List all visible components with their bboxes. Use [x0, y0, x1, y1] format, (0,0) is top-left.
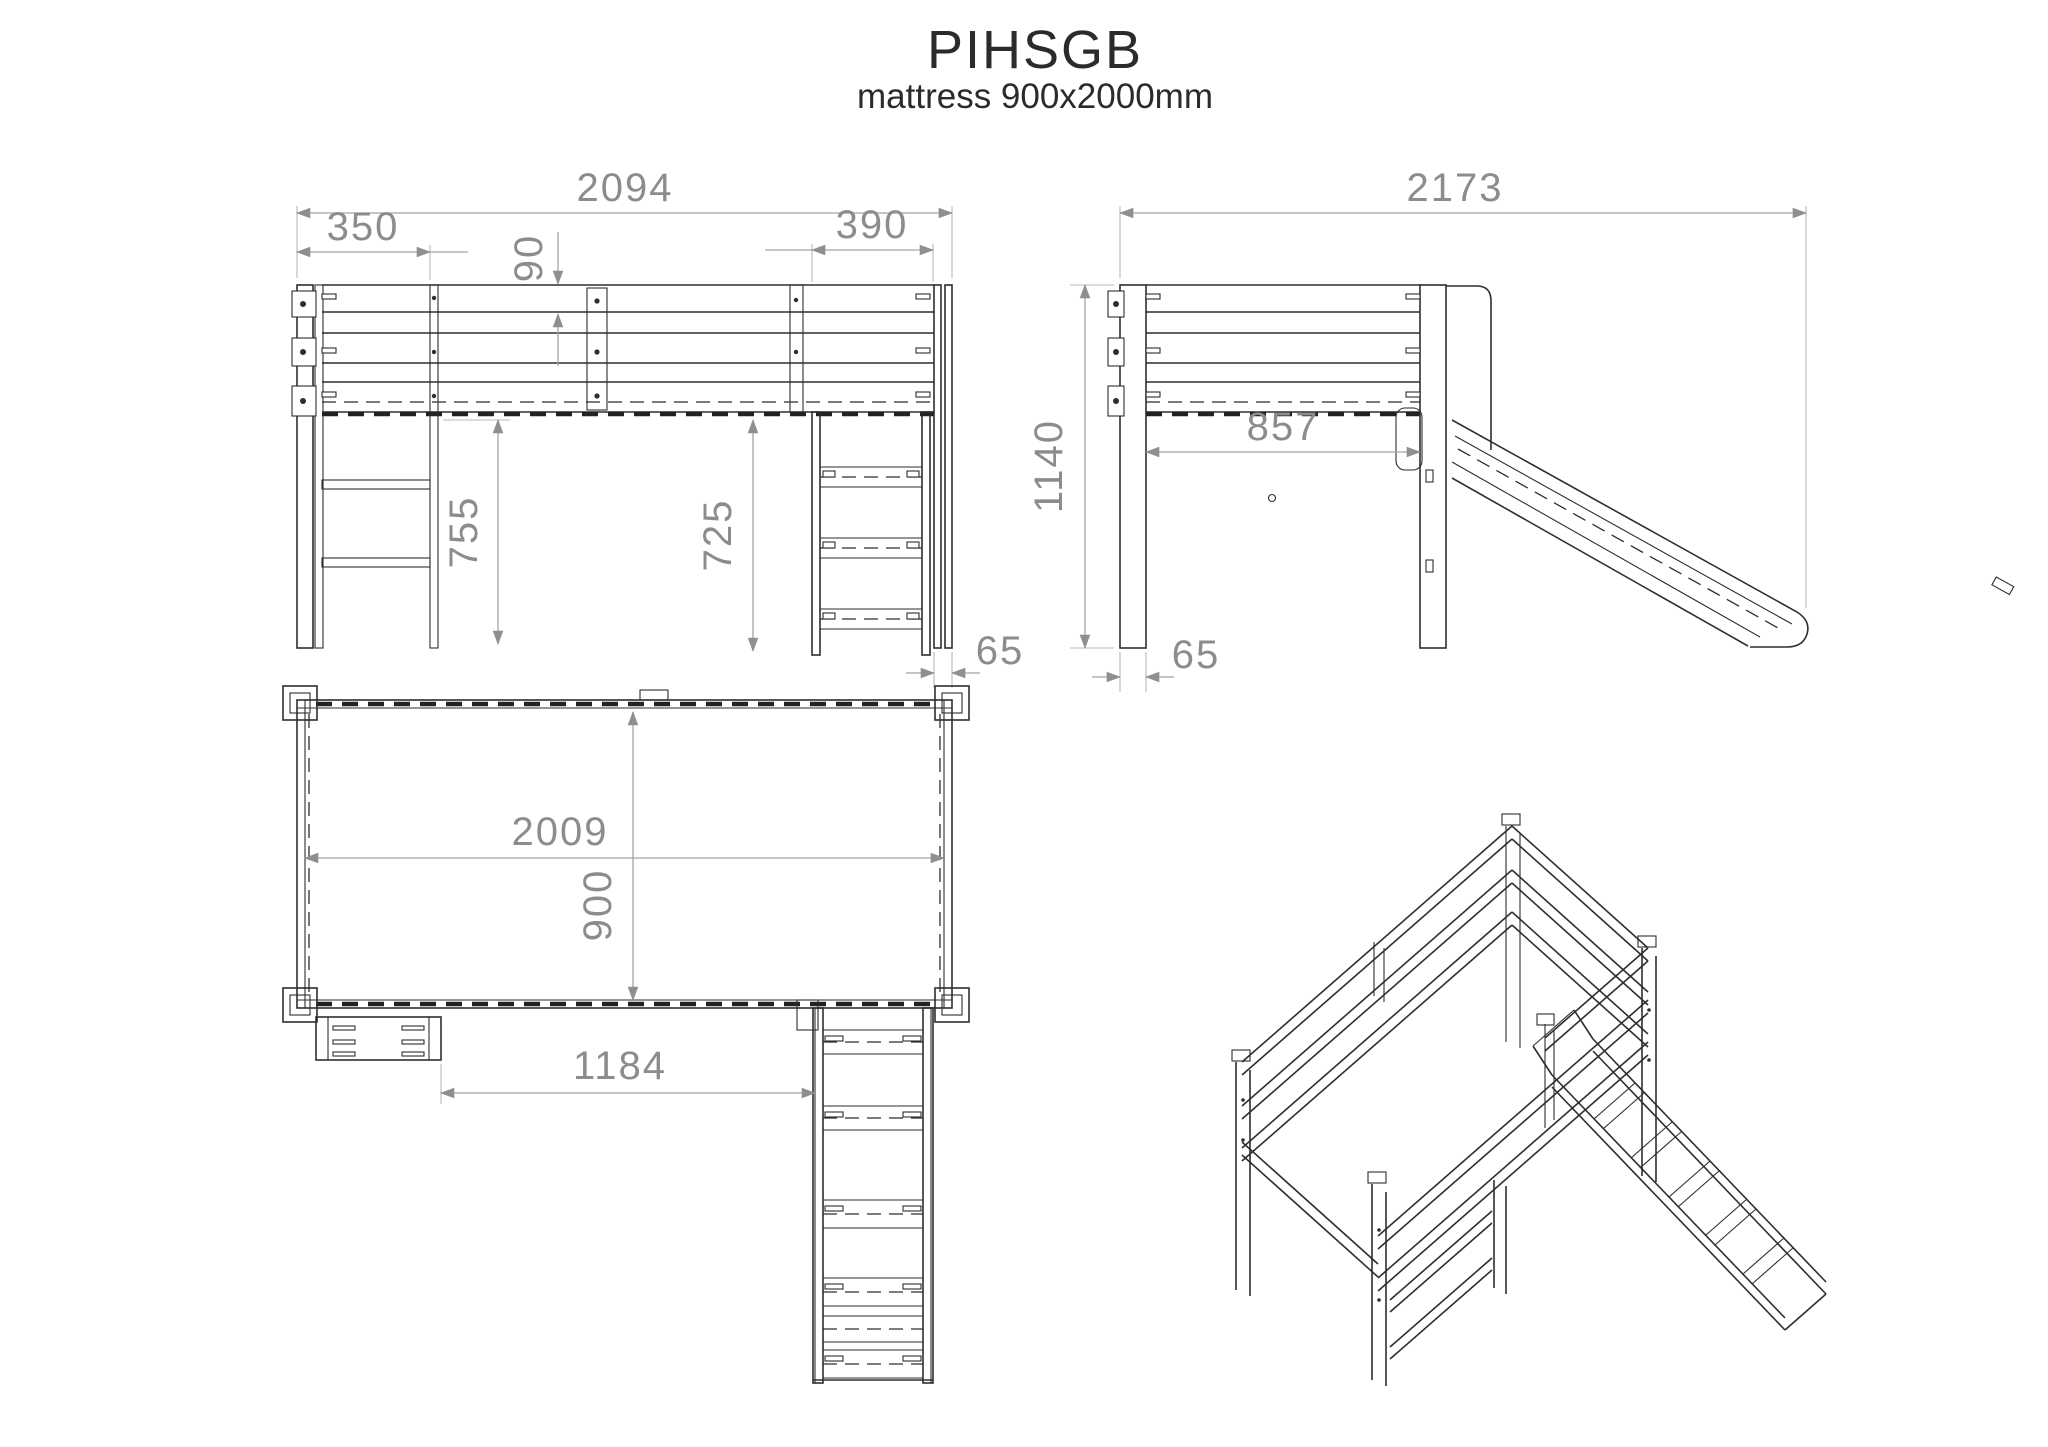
front-shelf [322, 480, 430, 567]
page-title: PIHSGB [927, 20, 1143, 80]
dim-front-ladder-bay: 390 [836, 203, 909, 247]
dim-front-height-under-ladder: 725 [696, 499, 740, 572]
dim-side-overall-height: 1140 [1027, 419, 1071, 513]
side-rails [1146, 285, 1420, 414]
dim-front-overall-width: 2094 [577, 166, 674, 210]
iso-shelf [1390, 1211, 1492, 1359]
side-slide-head [1396, 286, 1491, 470]
title-block: PIHSGB mattress 900x2000mm [857, 20, 1213, 116]
dim-side-post-width: 65 [1172, 633, 1221, 677]
dim-plan-shelf-to-ladder: 1184 [573, 1044, 667, 1088]
iso-left-end [1242, 1142, 1378, 1277]
dim-front-post-width: 65 [976, 629, 1025, 673]
technical-drawing-sheet: PIHSGB mattress 900x2000mm [0, 0, 2048, 1447]
front-ladder [812, 412, 930, 655]
page-subtitle: mattress 900x2000mm [857, 77, 1213, 116]
plan-shelf [316, 1017, 441, 1060]
side-posts [1108, 285, 1446, 648]
front-elevation-view: 2094 350 390 90 755 725 65 [292, 166, 1024, 688]
front-rails [322, 285, 934, 414]
dim-front-height-under-left: 755 [442, 496, 486, 569]
top-plan-view: 2009 900 1184 [283, 686, 969, 1383]
iso-front-rails [1378, 948, 1648, 1291]
dim-front-left-bay: 350 [327, 205, 400, 249]
dim-plan-inner-length: 2009 [512, 810, 609, 854]
front-connector-plates [292, 291, 930, 416]
side-slide [1452, 420, 2048, 649]
plan-ladder [797, 1000, 933, 1383]
drawing-canvas: PIHSGB mattress 900x2000mm [0, 0, 2048, 1447]
dim-side-overall-depth: 2173 [1407, 166, 1504, 210]
isometric-view [1232, 814, 1826, 1386]
iso-ladder [1533, 1010, 1826, 1330]
iso-back-rails [1242, 826, 1512, 1161]
dim-side-inner-depth: 857 [1247, 405, 1320, 449]
front-dimensions: 2094 350 390 90 755 725 65 [297, 166, 1024, 688]
front-center-slat [432, 288, 798, 410]
dim-plan-inner-width: 900 [576, 869, 620, 942]
iso-end-rails [1512, 826, 1648, 1047]
plan-dimensions: 2009 900 1184 [305, 712, 944, 1104]
plan-frame [297, 690, 952, 1008]
dim-front-guard-rail: 90 [507, 234, 551, 283]
plan-corner-posts [283, 686, 969, 1022]
side-elevation-view: 2173 1140 857 65 [1027, 166, 2048, 692]
